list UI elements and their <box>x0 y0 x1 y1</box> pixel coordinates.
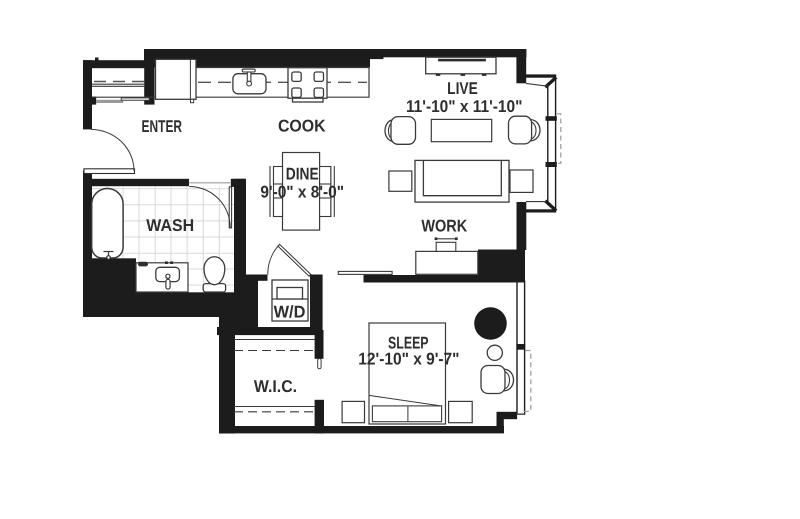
svg-text:WASH: WASH <box>146 216 194 235</box>
svg-text:WORK: WORK <box>421 217 468 236</box>
svg-text:W.I.C.: W.I.C. <box>254 377 297 396</box>
svg-text:DINE: DINE <box>286 165 319 184</box>
svg-text:11'-10" x 11'-10": 11'-10" x 11'-10" <box>406 97 523 116</box>
svg-text:LIVE: LIVE <box>447 79 478 98</box>
svg-text:ENTER: ENTER <box>142 117 183 136</box>
svg-text:9'-0" x 8'-0": 9'-0" x 8'-0" <box>260 183 344 202</box>
svg-text:COOK: COOK <box>278 116 326 135</box>
svg-text:12'-10" x 9'-7": 12'-10" x 9'-7" <box>358 350 459 369</box>
svg-text:W/D: W/D <box>274 303 306 322</box>
